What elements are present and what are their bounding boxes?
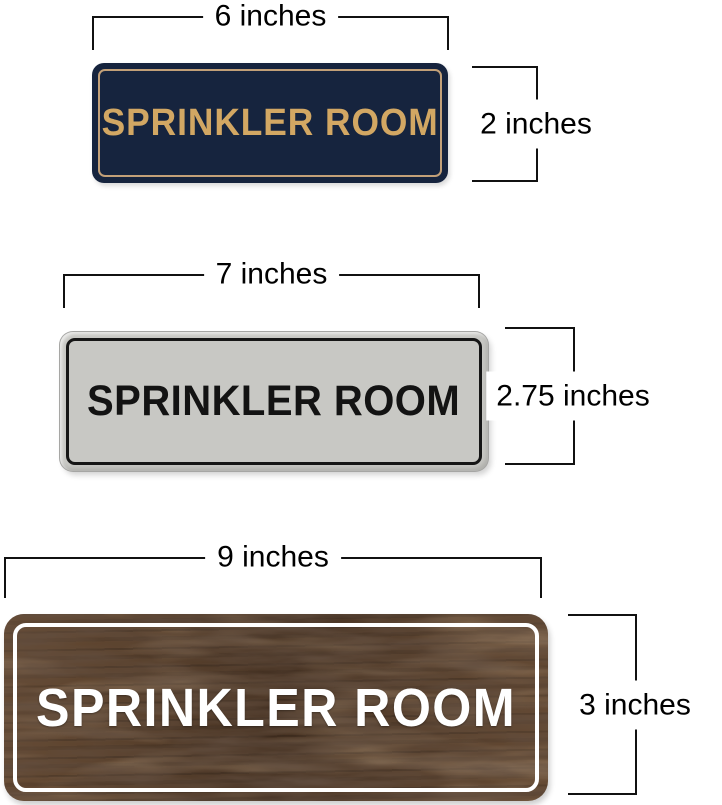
height-dimension-label-navy: 2 inches	[470, 100, 602, 149]
sign-walnut-white: SPRINKLER ROOM	[4, 614, 548, 801]
width-dimension-bracket-silver: 7 inches	[63, 274, 480, 308]
height-dimension-bracket-silver: 2.75 inches	[505, 327, 575, 465]
width-dimension-bracket-wood: 9 inches	[4, 557, 542, 598]
width-dimension-label-silver: 7 inches	[204, 256, 340, 291]
height-dimension-bracket-wood: 3 inches	[568, 614, 637, 795]
sign-wood-text: SPRINKLER ROOM	[36, 681, 516, 735]
sign-navy-gold: SPRINKLER ROOM	[92, 63, 448, 183]
height-dimension-label-wood: 3 inches	[569, 680, 701, 729]
height-dimension-label-silver: 2.75 inches	[486, 372, 659, 421]
width-dimension-label-navy: 6 inches	[203, 0, 339, 33]
width-dimension-label-wood: 9 inches	[205, 539, 341, 574]
height-dimension-bracket-navy: 2 inches	[472, 66, 538, 182]
width-dimension-bracket-navy: 6 inches	[92, 16, 449, 50]
sign-silver-black: SPRINKLER ROOM	[60, 332, 488, 471]
sign-silver-text: SPRINKLER ROOM	[87, 380, 460, 423]
product-size-diagram: 6 inches SPRINKLER ROOM 2 inches 7 inche…	[0, 0, 722, 805]
sign-navy-text: SPRINKLER ROOM	[102, 104, 439, 142]
